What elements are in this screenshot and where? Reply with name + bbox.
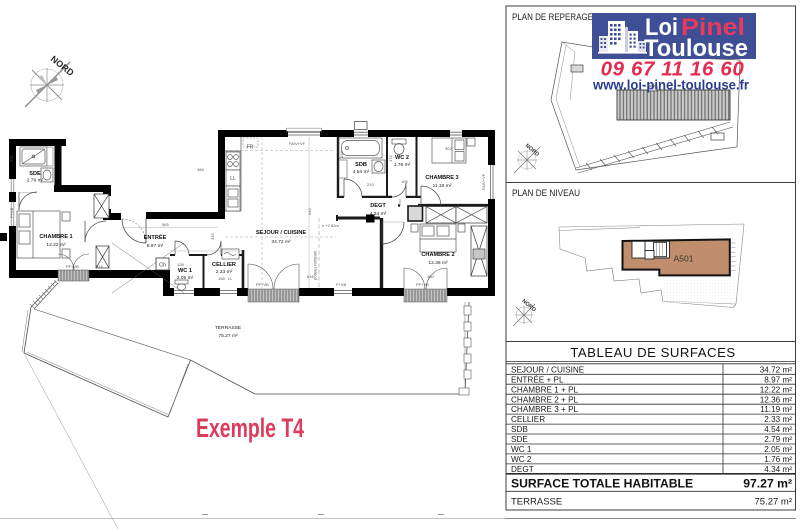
svg-text:FA/V+VF: FA/V+VF: [289, 141, 306, 146]
svg-text:4.54 m²: 4.54 m²: [764, 425, 792, 434]
svg-text:CHAMBRE 1 + PL: CHAMBRE 1 + PL: [511, 385, 579, 394]
svg-text:PF+VB: PF+VB: [66, 264, 79, 269]
svg-text:Exemple T4: Exemple T4: [196, 413, 304, 443]
svg-text:F+VB: F+VB: [336, 282, 346, 287]
svg-text:1.76 m²: 1.76 m²: [394, 162, 411, 168]
svg-text:PLAN DE NIVEAU: PLAN DE NIVEAU: [512, 188, 580, 198]
svg-text:CHAMBRE 1: CHAMBRE 1: [39, 234, 72, 240]
svg-text:466: 466: [197, 167, 204, 172]
svg-text:LL: LL: [230, 176, 236, 182]
svg-text:4.54 m²: 4.54 m²: [353, 169, 370, 175]
svg-text:2.05 m²: 2.05 m²: [764, 445, 792, 454]
svg-text:11.19 m²: 11.19 m²: [433, 183, 452, 189]
svg-text:CELLIER: CELLIER: [212, 262, 236, 268]
svg-text:WC 1: WC 1: [178, 268, 192, 274]
svg-text:75.27 m²: 75.27 m²: [755, 497, 793, 508]
svg-text:2.79 m²: 2.79 m²: [27, 178, 44, 184]
svg-text:2.05 m²: 2.05 m²: [177, 275, 194, 281]
svg-text:12.36 m²: 12.36 m²: [760, 395, 793, 404]
svg-text:234: 234: [339, 151, 344, 158]
svg-text:WC 2: WC 2: [511, 455, 532, 464]
svg-text:2.33 m²: 2.33 m²: [216, 269, 233, 275]
svg-text:DEGT: DEGT: [370, 203, 386, 209]
svg-text:128: 128: [177, 262, 184, 267]
svg-text:CHAMBRE 2 + PL: CHAMBRE 2 + PL: [511, 395, 579, 404]
svg-text:SDE: SDE: [511, 435, 528, 444]
svg-text:F+VB: F+VB: [9, 208, 14, 218]
svg-text:302: 302: [445, 146, 452, 151]
svg-text:34.72 m²: 34.72 m²: [271, 239, 291, 245]
svg-text:4.34 m²: 4.34 m²: [370, 211, 387, 217]
svg-text:DEGT: DEGT: [511, 465, 534, 474]
svg-text:211: 211: [9, 155, 14, 162]
svg-text:315: 315: [210, 233, 215, 240]
svg-text:Ch: Ch: [159, 263, 166, 269]
svg-text:12.22 m²: 12.22 m²: [760, 385, 793, 394]
svg-text:158: 158: [218, 276, 225, 281]
svg-text:FA/V+VF: FA/V+VF: [481, 173, 486, 190]
svg-text:LL: LL: [228, 276, 233, 281]
svg-text:CHAMBRE 3: CHAMBRE 3: [425, 175, 458, 181]
svg-text:105: 105: [401, 179, 408, 184]
svg-text:SEJOUR / CUISINE: SEJOUR / CUISINE: [511, 365, 585, 374]
svg-text:34.72 m²: 34.72 m²: [760, 365, 793, 374]
svg-text:4.34 m²: 4.34 m²: [764, 465, 792, 474]
svg-text:210: 210: [367, 182, 374, 187]
svg-text:SDE: SDE: [29, 171, 41, 177]
svg-text:CHAMBRE 3 + PL: CHAMBRE 3 + PL: [511, 405, 579, 414]
svg-text:A501: A501: [673, 254, 693, 264]
svg-text:97.27 m²: 97.27 m²: [743, 477, 792, 491]
svg-text:WC 1: WC 1: [511, 445, 532, 454]
svg-text:12.36 m²: 12.36 m²: [428, 260, 448, 266]
svg-text:374: 374: [96, 264, 103, 269]
svg-text:TERRASSE: TERRASSE: [511, 497, 562, 508]
svg-text:TABLEAU DE SURFACES: TABLEAU DE SURFACES: [570, 345, 735, 360]
svg-text:SDB: SDB: [511, 425, 528, 434]
svg-text:8.97 m²: 8.97 m²: [147, 243, 164, 249]
svg-text:8.97 m²: 8.97 m²: [764, 375, 792, 384]
svg-text:CHAMBRE 2: CHAMBRE 2: [421, 252, 454, 258]
svg-text:PLAN DE REPERAGE: PLAN DE REPERAGE: [512, 12, 593, 22]
svg-text:643: 643: [307, 208, 312, 215]
svg-text:WC 2: WC 2: [395, 155, 409, 161]
svg-text:2.33 m²: 2.33 m²: [764, 415, 792, 424]
svg-text:SEJOUR / CUISINE: SEJOUR / CUISINE: [256, 230, 307, 236]
svg-text:h +2.82m: h +2.82m: [322, 223, 339, 228]
svg-text:450: 450: [427, 274, 434, 279]
svg-text:CELLIER: CELLIER: [511, 415, 545, 424]
svg-text:www.loi-pinel-toulouse.fr: www.loi-pinel-toulouse.fr: [592, 78, 749, 94]
svg-text:12.22 m²: 12.22 m²: [46, 242, 66, 248]
svg-text:PF+VB: PF+VB: [416, 282, 429, 287]
svg-text:PF+VB: PF+VB: [256, 282, 269, 287]
svg-text:565: 565: [162, 222, 169, 227]
svg-text:11.19 m²: 11.19 m²: [760, 405, 792, 414]
svg-text:616: 616: [307, 274, 314, 279]
svg-text:FR: FR: [247, 145, 254, 151]
svg-text:TERRASSE: TERRASSE: [215, 325, 242, 331]
svg-text:172: 172: [388, 155, 393, 162]
svg-text:75.27 m²: 75.27 m²: [218, 333, 238, 339]
svg-text:2.79 m²: 2.79 m²: [764, 435, 792, 444]
svg-text:1.76 m²: 1.76 m²: [764, 455, 792, 464]
svg-text:SURFACE TOTALE HABITABLE: SURFACE TOTALE HABITABLE: [511, 477, 693, 491]
svg-text:ENTRÉE + PL: ENTRÉE + PL: [511, 374, 564, 384]
svg-text:SDB: SDB: [355, 162, 367, 168]
svg-text:ENTRÉE: ENTRÉE: [144, 233, 167, 241]
